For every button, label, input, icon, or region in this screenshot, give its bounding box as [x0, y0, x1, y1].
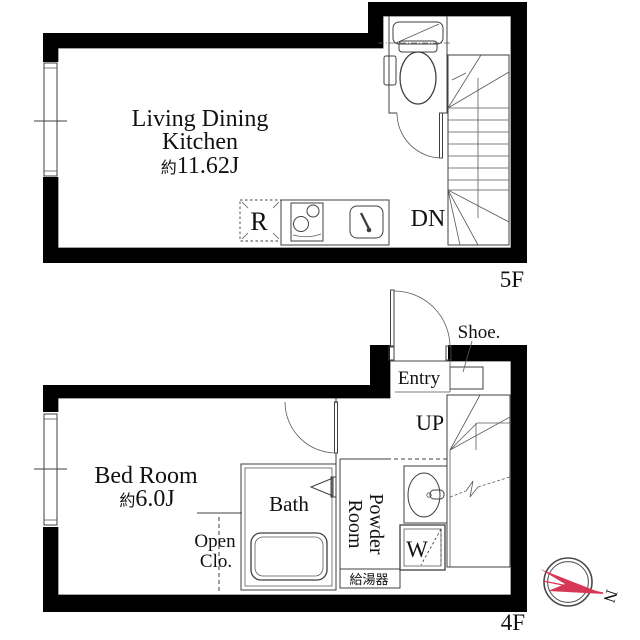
bedroom-area-prefix: 約 [119, 492, 135, 510]
powder-room-line1: Powder [365, 493, 387, 554]
floor-4-plan: Shoe. Entry UP Bed Room 約6.0J [34, 290, 527, 635]
powder-room-line2: Room [344, 500, 366, 549]
bedroom-area-value: 6.0J [135, 486, 174, 512]
compass-north-label: N [600, 587, 622, 605]
washer-label: W [406, 537, 428, 562]
ldk-area-prefix: 約 [161, 159, 177, 177]
stairs-up-label: UP [416, 410, 444, 435]
open-closet-line2: Clo. [200, 551, 232, 572]
floor-plan-drawing: DN R Living Dining Kitchen [0, 0, 640, 640]
ldk-name-line2: Kitchen [162, 129, 238, 155]
floor-5-label: 5F [500, 267, 524, 292]
bath-label: Bath [269, 492, 309, 516]
open-closet-line1: Open [194, 531, 236, 552]
ldk-area-value: 11.62J [177, 153, 239, 179]
compass-icon: N [540, 558, 621, 606]
water-heater-label: 給湯器 [349, 572, 388, 587]
entry-label: Entry [398, 368, 441, 389]
entrance-door [389, 290, 451, 360]
floor-plan-page: DN R Living Dining Kitchen [0, 0, 640, 640]
shoe-label: Shoe. [458, 322, 501, 343]
floor-4-label: 4F [501, 610, 525, 635]
powder-room-label: Powder Room [344, 493, 387, 554]
stairs-down-label: DN [411, 206, 446, 232]
floor-5-plan: DN R Living Dining Kitchen [34, 2, 527, 292]
refrigerator-label: R [250, 207, 268, 236]
